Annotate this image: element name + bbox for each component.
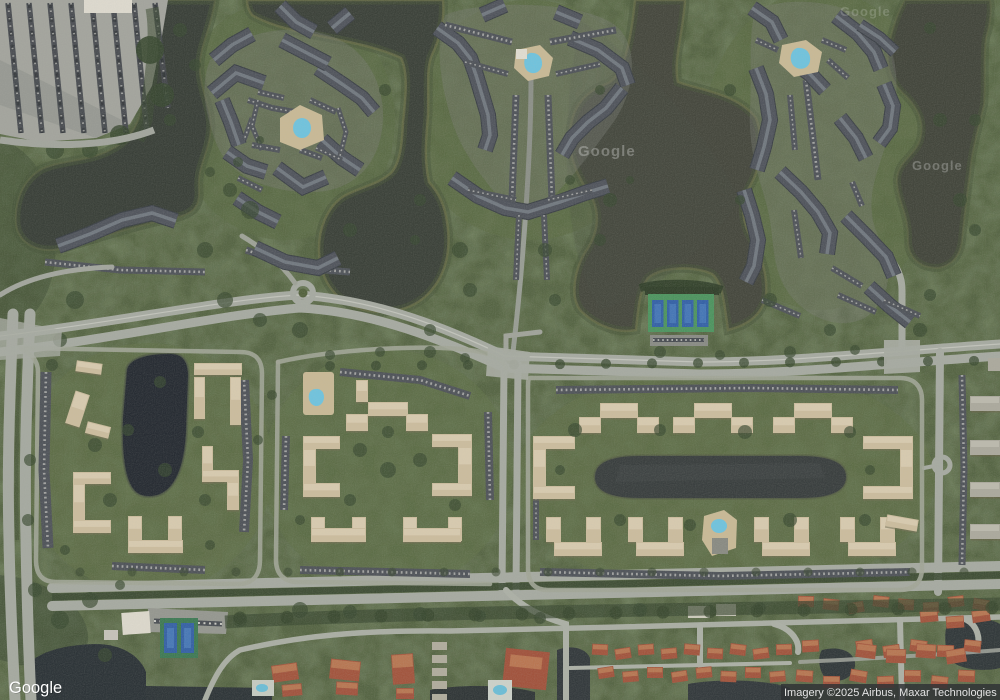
svg-text:Imagery ©2025 Airbus, Maxar Te: Imagery ©2025 Airbus, Maxar Technologies <box>784 687 997 699</box>
svg-text:Google: Google <box>9 679 62 697</box>
svg-text:Google: Google <box>840 4 891 19</box>
svg-text:Google: Google <box>912 158 963 173</box>
svg-text:Google: Google <box>578 143 636 160</box>
